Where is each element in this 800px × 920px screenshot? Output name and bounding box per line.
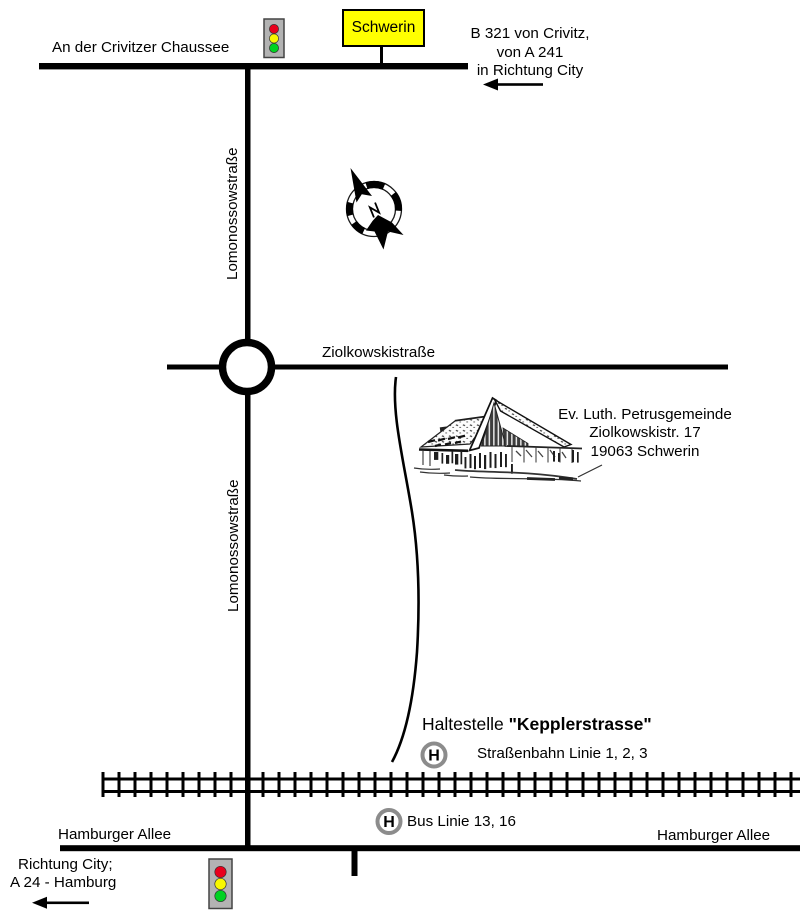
svg-text:H: H bbox=[428, 748, 440, 765]
svg-text:H: H bbox=[383, 814, 395, 831]
